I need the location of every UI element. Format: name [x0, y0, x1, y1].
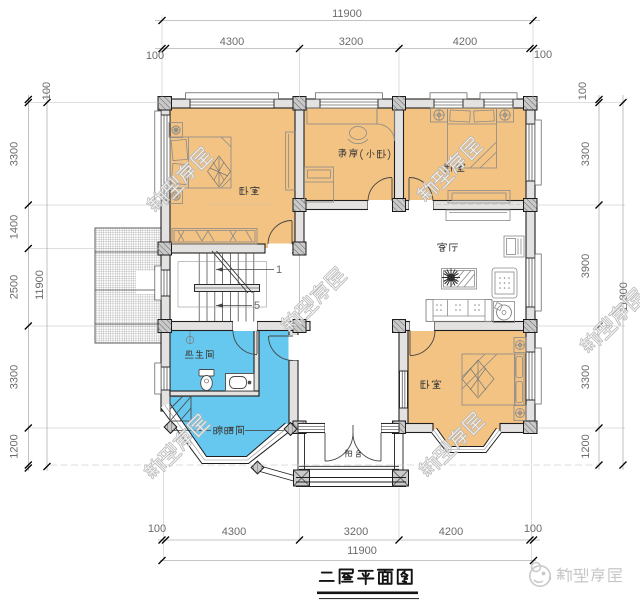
svg-text:1200: 1200: [580, 434, 592, 458]
svg-text:1200: 1200: [9, 434, 21, 458]
svg-text:100: 100: [41, 82, 53, 100]
svg-text:100: 100: [524, 523, 542, 535]
svg-text:100: 100: [577, 82, 589, 100]
svg-text:4200: 4200: [453, 36, 477, 48]
svg-text:3300: 3300: [580, 142, 592, 166]
svg-text:3300: 3300: [9, 142, 21, 166]
svg-text:11900: 11900: [347, 545, 377, 557]
svg-text:4300: 4300: [222, 526, 246, 538]
svg-text:100: 100: [534, 49, 552, 61]
svg-text:3900: 3900: [580, 254, 592, 278]
svg-text:11900: 11900: [332, 8, 362, 20]
svg-text:1: 1: [276, 264, 282, 276]
svg-text:2500: 2500: [9, 275, 21, 299]
svg-text:3300: 3300: [9, 365, 21, 389]
svg-text:3200: 3200: [339, 36, 363, 48]
svg-text:3300: 3300: [580, 365, 592, 389]
svg-text:1400: 1400: [9, 215, 21, 239]
svg-text:4200: 4200: [439, 526, 463, 538]
svg-text:100: 100: [148, 523, 166, 535]
svg-text:3200: 3200: [344, 526, 368, 538]
svg-text:11900: 11900: [34, 270, 46, 300]
svg-text:4300: 4300: [220, 36, 244, 48]
svg-text:5: 5: [254, 300, 260, 312]
svg-text:100: 100: [146, 50, 164, 62]
